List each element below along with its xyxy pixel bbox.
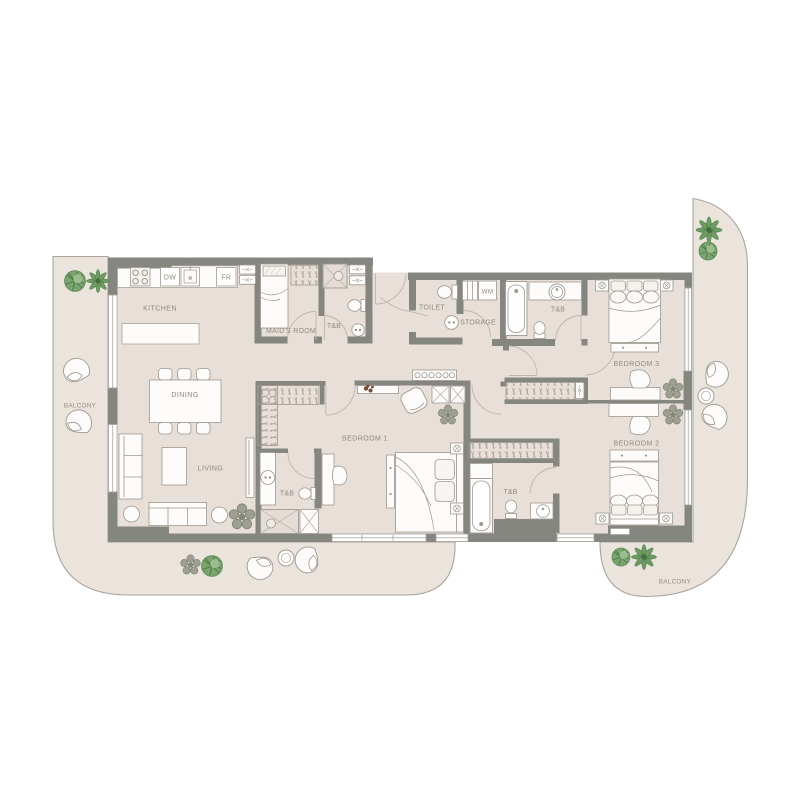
svg-text:STORAGE: STORAGE xyxy=(460,320,496,327)
svg-text:BALCONY: BALCONY xyxy=(64,403,97,410)
svg-text:T&B: T&B xyxy=(503,489,517,496)
svg-text:T&B: T&B xyxy=(327,323,341,330)
svg-text:FR: FR xyxy=(221,275,231,282)
svg-text:BEDROOM 2: BEDROOM 2 xyxy=(613,441,659,448)
svg-text:TOILET: TOILET xyxy=(419,305,445,312)
svg-text:DW: DW xyxy=(164,275,176,282)
svg-text:BALCONY: BALCONY xyxy=(659,579,692,586)
svg-text:KITCHEN: KITCHEN xyxy=(143,306,177,313)
svg-text:BEDROOM 3: BEDROOM 3 xyxy=(613,361,659,368)
svg-text:T&B: T&B xyxy=(280,491,294,498)
svg-text:T&B: T&B xyxy=(551,307,565,314)
svg-text:BEDROOM 1: BEDROOM 1 xyxy=(342,436,388,443)
svg-text:LIVING: LIVING xyxy=(198,466,224,473)
svg-text:DINING: DINING xyxy=(171,392,198,399)
svg-text:WM: WM xyxy=(482,289,494,296)
svg-text:MAID'S ROOM: MAID'S ROOM xyxy=(266,328,316,335)
